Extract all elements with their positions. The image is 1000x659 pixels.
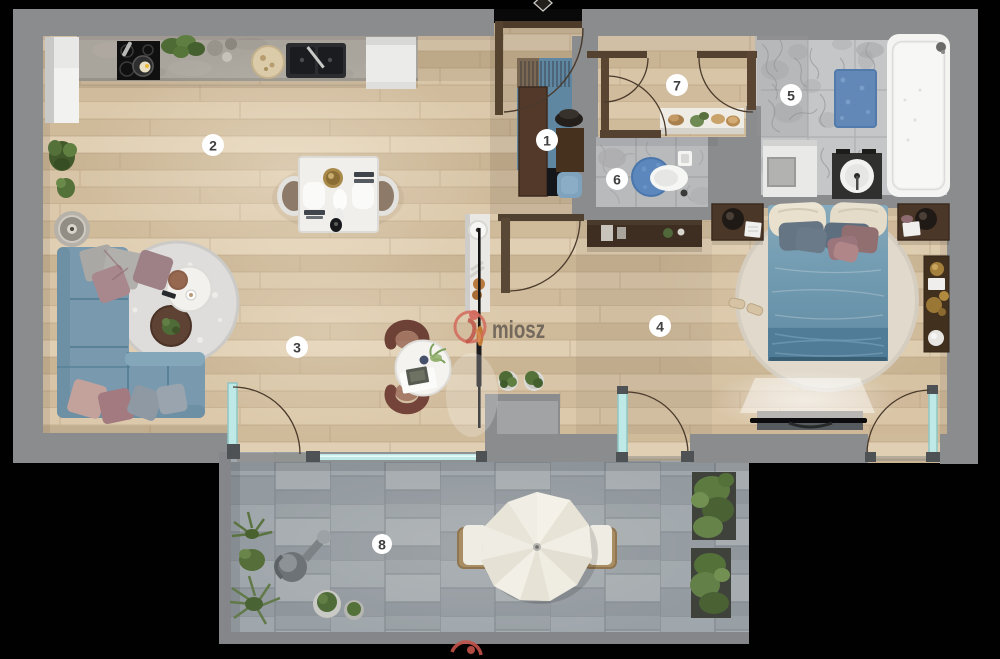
svg-text:5: 5 [787, 88, 795, 104]
svg-text:1: 1 [543, 133, 551, 149]
svg-text:7: 7 [673, 78, 681, 94]
svg-text:3: 3 [293, 340, 301, 356]
svg-text:miosz: miosz [492, 315, 545, 343]
svg-text:6: 6 [613, 172, 621, 188]
svg-text:4: 4 [656, 319, 664, 335]
svg-text:2: 2 [209, 138, 217, 154]
svg-text:8: 8 [378, 537, 386, 553]
